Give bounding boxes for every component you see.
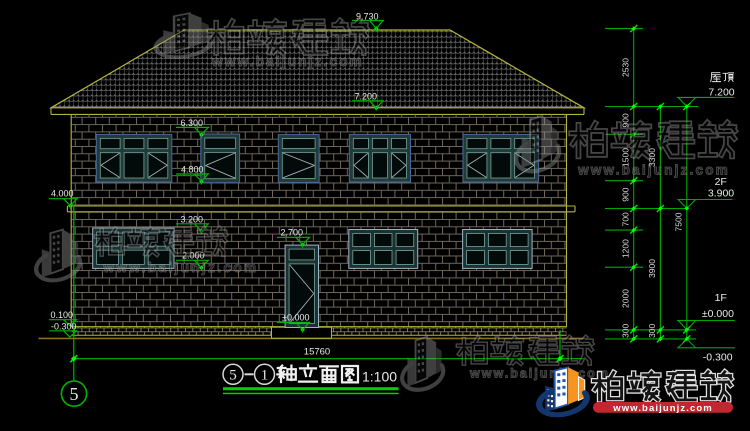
svg-text:700: 700 [621,212,631,226]
svg-text:300: 300 [621,324,631,338]
svg-text:2000: 2000 [621,289,631,308]
svg-text:www.baijunjz.com: www.baijunjz.com [469,367,610,381]
svg-text:7500: 7500 [674,212,684,231]
svg-text:7.200: 7.200 [708,86,734,98]
svg-text:5: 5 [70,384,79,404]
svg-text:15760: 15760 [304,347,330,358]
svg-text:900: 900 [621,187,631,201]
svg-text:0.100: 0.100 [51,310,74,320]
svg-text:www.baijunjz.com: www.baijunjz.com [612,403,713,414]
svg-text:www.baijunjz.com: www.baijunjz.com [211,54,364,69]
svg-text:4.000: 4.000 [51,189,74,199]
svg-text:±0.000: ±0.000 [702,308,734,320]
svg-text:2F: 2F [715,176,727,188]
svg-text:2.700: 2.700 [281,228,304,238]
svg-text:3900: 3900 [647,259,657,278]
svg-text:1F: 1F [715,292,727,304]
svg-text:www.baijunjz.com: www.baijunjz.com [103,260,259,275]
svg-text:±0.000: ±0.000 [282,312,309,322]
svg-text:1:100: 1:100 [362,369,397,385]
svg-text:3.200: 3.200 [181,214,204,224]
svg-text:3.900: 3.900 [708,188,734,200]
svg-text:5: 5 [229,367,237,383]
svg-text:-0.300: -0.300 [703,352,733,364]
svg-text:6.300: 6.300 [181,118,204,128]
svg-text:7.200: 7.200 [355,92,378,102]
svg-text:-0.300: -0.300 [51,322,77,332]
svg-text:4.800: 4.800 [181,165,204,175]
svg-text:1: 1 [261,367,269,383]
svg-text:2530: 2530 [621,58,631,77]
svg-text:www.baijunjz.com: www.baijunjz.com [577,163,730,178]
svg-text:1200: 1200 [621,239,631,258]
svg-text:300: 300 [647,324,657,338]
